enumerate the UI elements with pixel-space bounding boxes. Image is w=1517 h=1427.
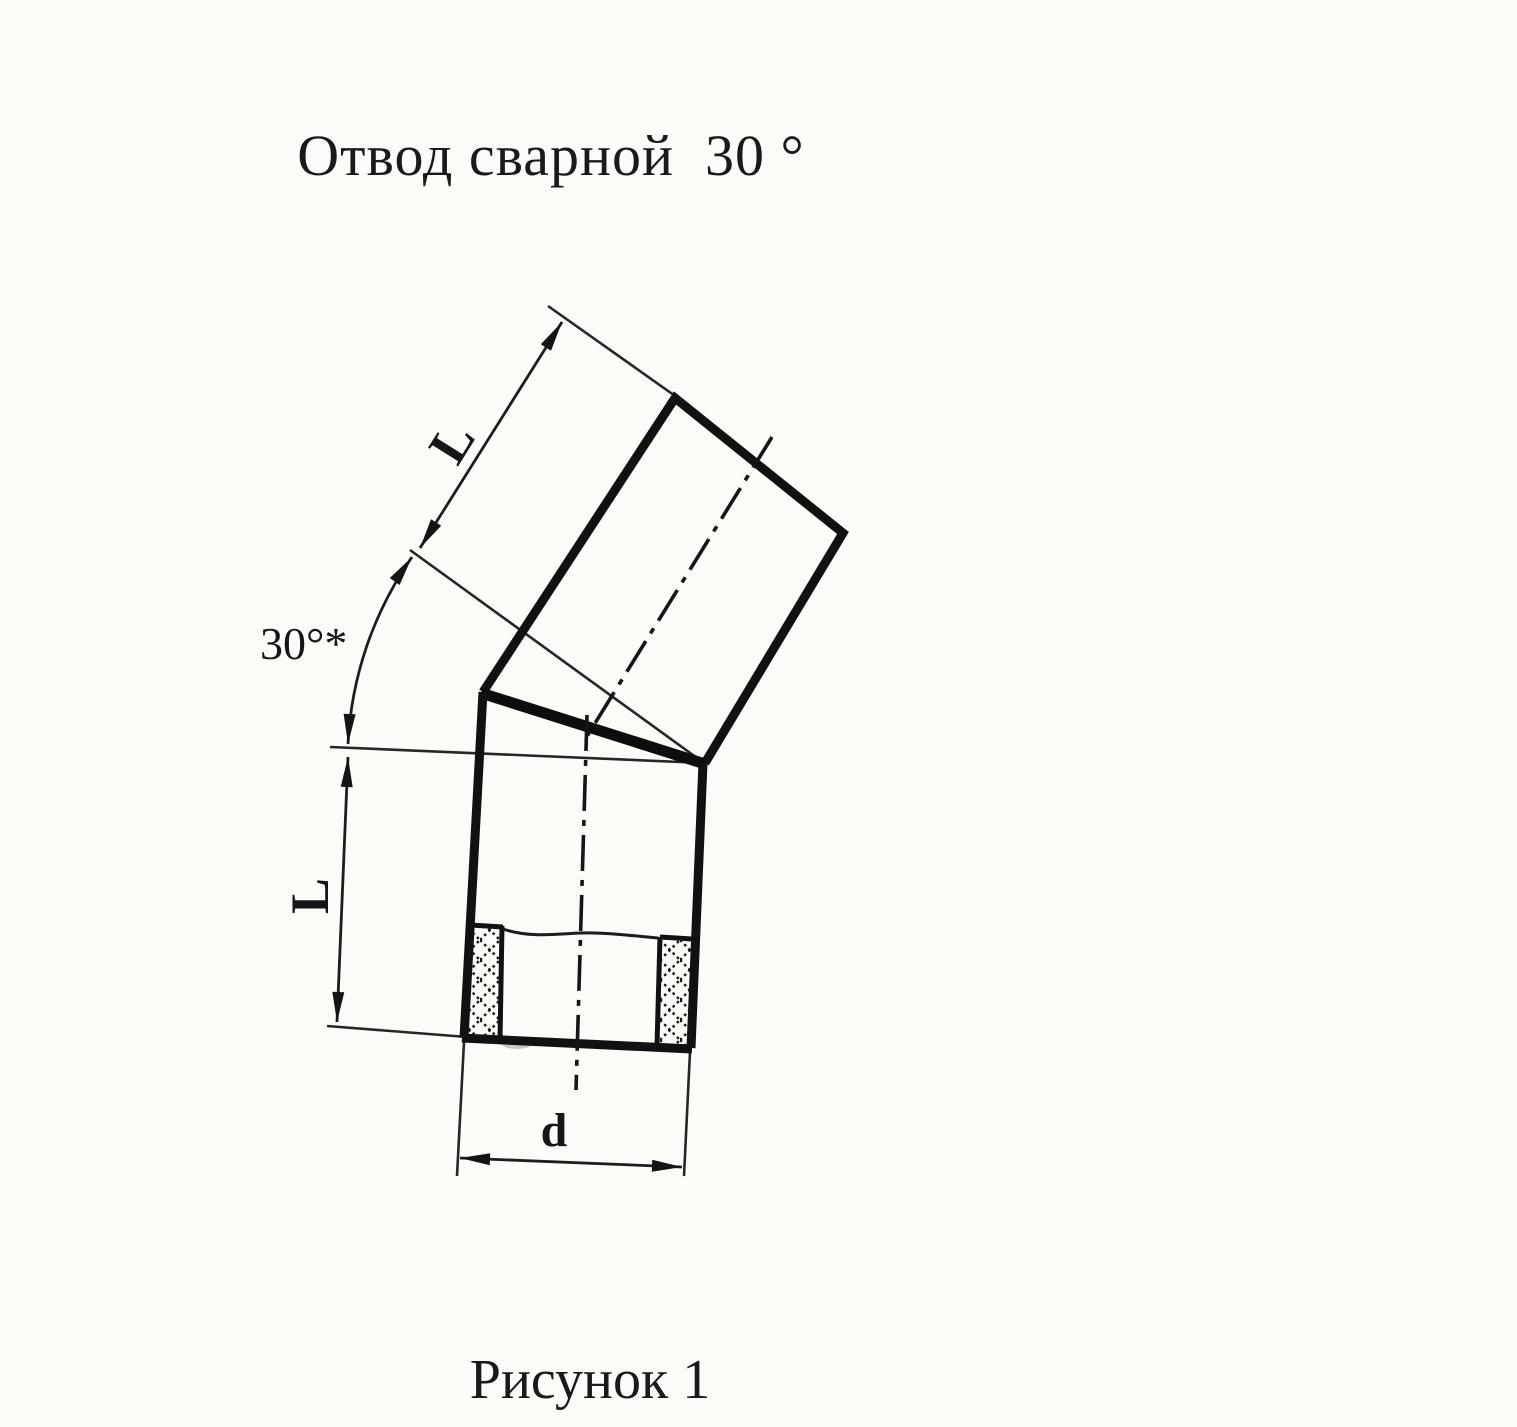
d-left-extension-line [457,1042,464,1176]
upper-length-label: L [417,411,487,473]
arrow-arc-top [390,557,412,585]
angle-label: 30°* [260,618,347,669]
figure-caption: Рисунок 1 [470,1348,710,1412]
left-wall-hatch [466,924,503,1040]
right-wall-inner-edge [657,937,660,1046]
right-wall-hatch [657,936,692,1048]
left-wall-inner-edge [500,926,502,1040]
top-edge-extension-line [548,306,678,398]
lower-segment-right-edge [691,763,703,1048]
bottom-extension-line [327,1026,467,1037]
arrow-upper-L-bottom [420,519,441,548]
left-wall-top-edge [470,925,503,927]
lower-length-label: L [280,878,340,914]
diameter-dimension-line [460,1158,682,1167]
d-right-extension-line [684,1052,690,1176]
elbow-technical-drawing: L 30°* L d [0,0,1517,1427]
arrow-upper-L-top [541,322,562,351]
right-wall-top-edge [660,937,692,939]
weld-seam [481,693,705,764]
scanned-drawing-page: Отвод сварной 30 ° [0,0,1517,1427]
angle-arc [348,557,412,744]
diameter-label: d [541,1104,568,1157]
lower-centerline [576,715,587,1090]
